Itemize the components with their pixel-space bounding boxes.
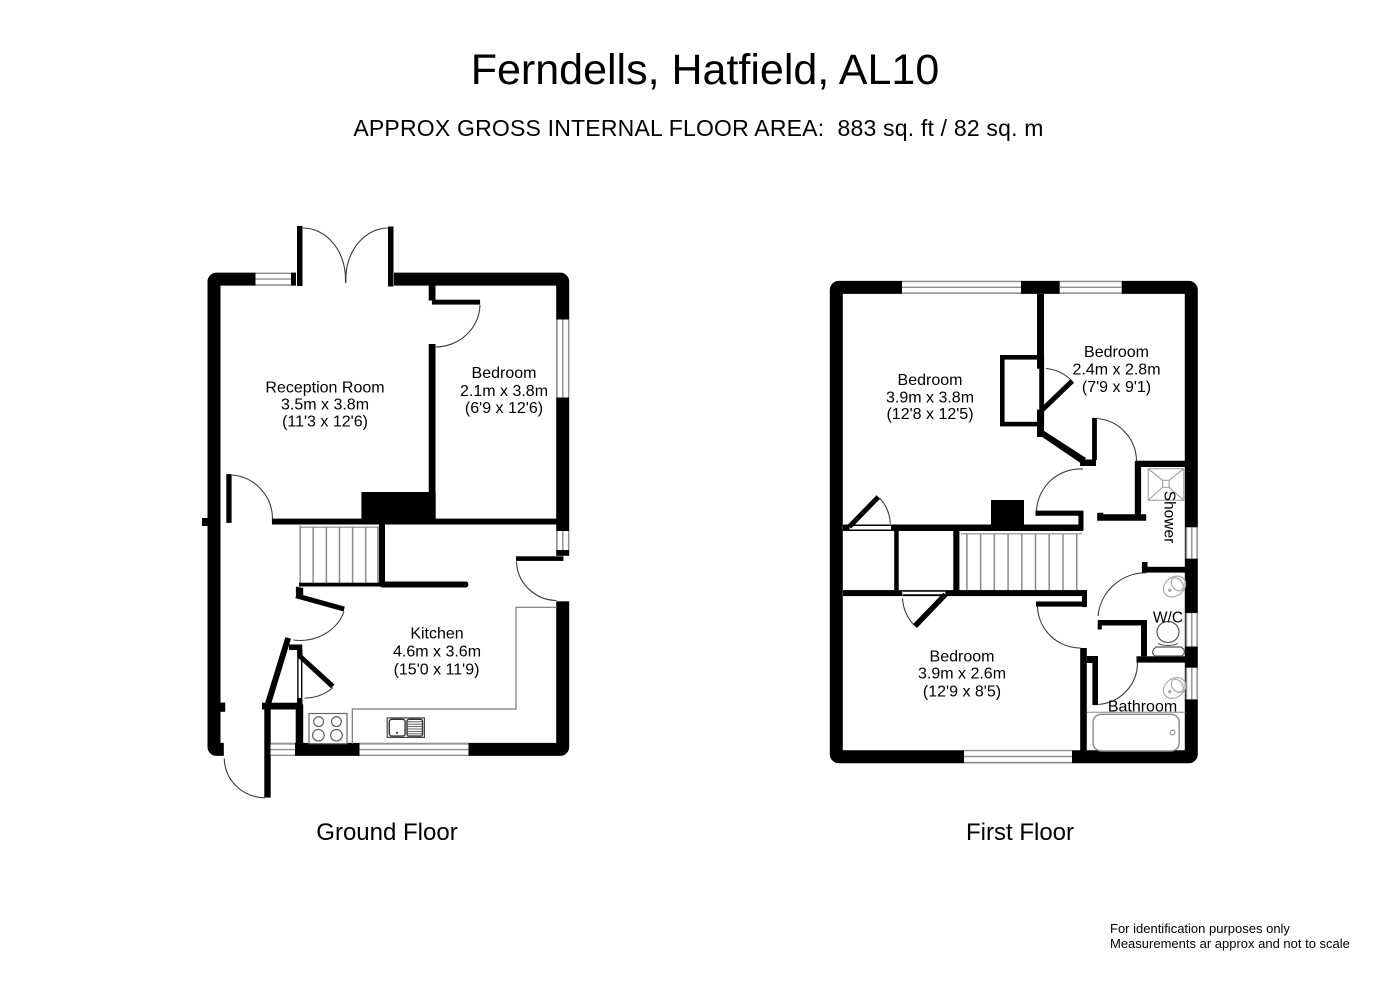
svg-text:3.9m x 2.6m: 3.9m x 2.6m bbox=[918, 666, 1006, 683]
svg-text:(7'9 x 9'1): (7'9 x 9'1) bbox=[1082, 379, 1151, 396]
svg-text:Bedroom: Bedroom bbox=[1084, 344, 1149, 361]
svg-text:Reception Room: Reception Room bbox=[265, 380, 384, 397]
svg-text:First Floor: First Floor bbox=[966, 819, 1074, 846]
svg-text:Shower: Shower bbox=[1161, 491, 1178, 544]
svg-text:Kitchen: Kitchen bbox=[410, 626, 463, 643]
svg-text:Bedroom: Bedroom bbox=[472, 365, 537, 382]
svg-text:2.1m x 3.8m: 2.1m x 3.8m bbox=[460, 383, 548, 400]
svg-text:(11'3 x 12'6): (11'3 x 12'6) bbox=[282, 414, 368, 431]
svg-text:(6'9 x 12'6): (6'9 x 12'6) bbox=[465, 400, 543, 417]
svg-text:Measurements ar approx and not: Measurements ar approx and not to scale bbox=[1110, 936, 1350, 951]
svg-text:4.6m x 3.6m: 4.6m x 3.6m bbox=[393, 644, 481, 661]
svg-text:Bedroom: Bedroom bbox=[930, 649, 995, 666]
svg-text:Ground Floor: Ground Floor bbox=[316, 819, 457, 846]
svg-text:(12'8 x 12'5): (12'8 x 12'5) bbox=[886, 406, 973, 423]
svg-text:For identification purposes on: For identification purposes only bbox=[1110, 921, 1290, 936]
svg-text:(15'0 x 11'9): (15'0 x 11'9) bbox=[394, 662, 480, 679]
svg-text:Ferndells, Hatfield, AL10: Ferndells, Hatfield, AL10 bbox=[471, 46, 940, 94]
svg-text:3.5m x 3.8m: 3.5m x 3.8m bbox=[281, 397, 369, 414]
svg-text:Bedroom: Bedroom bbox=[898, 372, 963, 389]
svg-text:(12'9 x 8'5): (12'9 x 8'5) bbox=[923, 683, 1001, 700]
svg-text:Bathroom: Bathroom bbox=[1108, 699, 1177, 716]
svg-text:APPROX GROSS INTERNAL FLOOR AR: APPROX GROSS INTERNAL FLOOR AREA: 883 sq… bbox=[353, 115, 1043, 141]
svg-text:2.4m x 2.8m: 2.4m x 2.8m bbox=[1072, 361, 1160, 378]
svg-text:3.9m x 3.8m: 3.9m x 3.8m bbox=[886, 389, 974, 406]
svg-text:W/C: W/C bbox=[1153, 610, 1183, 627]
